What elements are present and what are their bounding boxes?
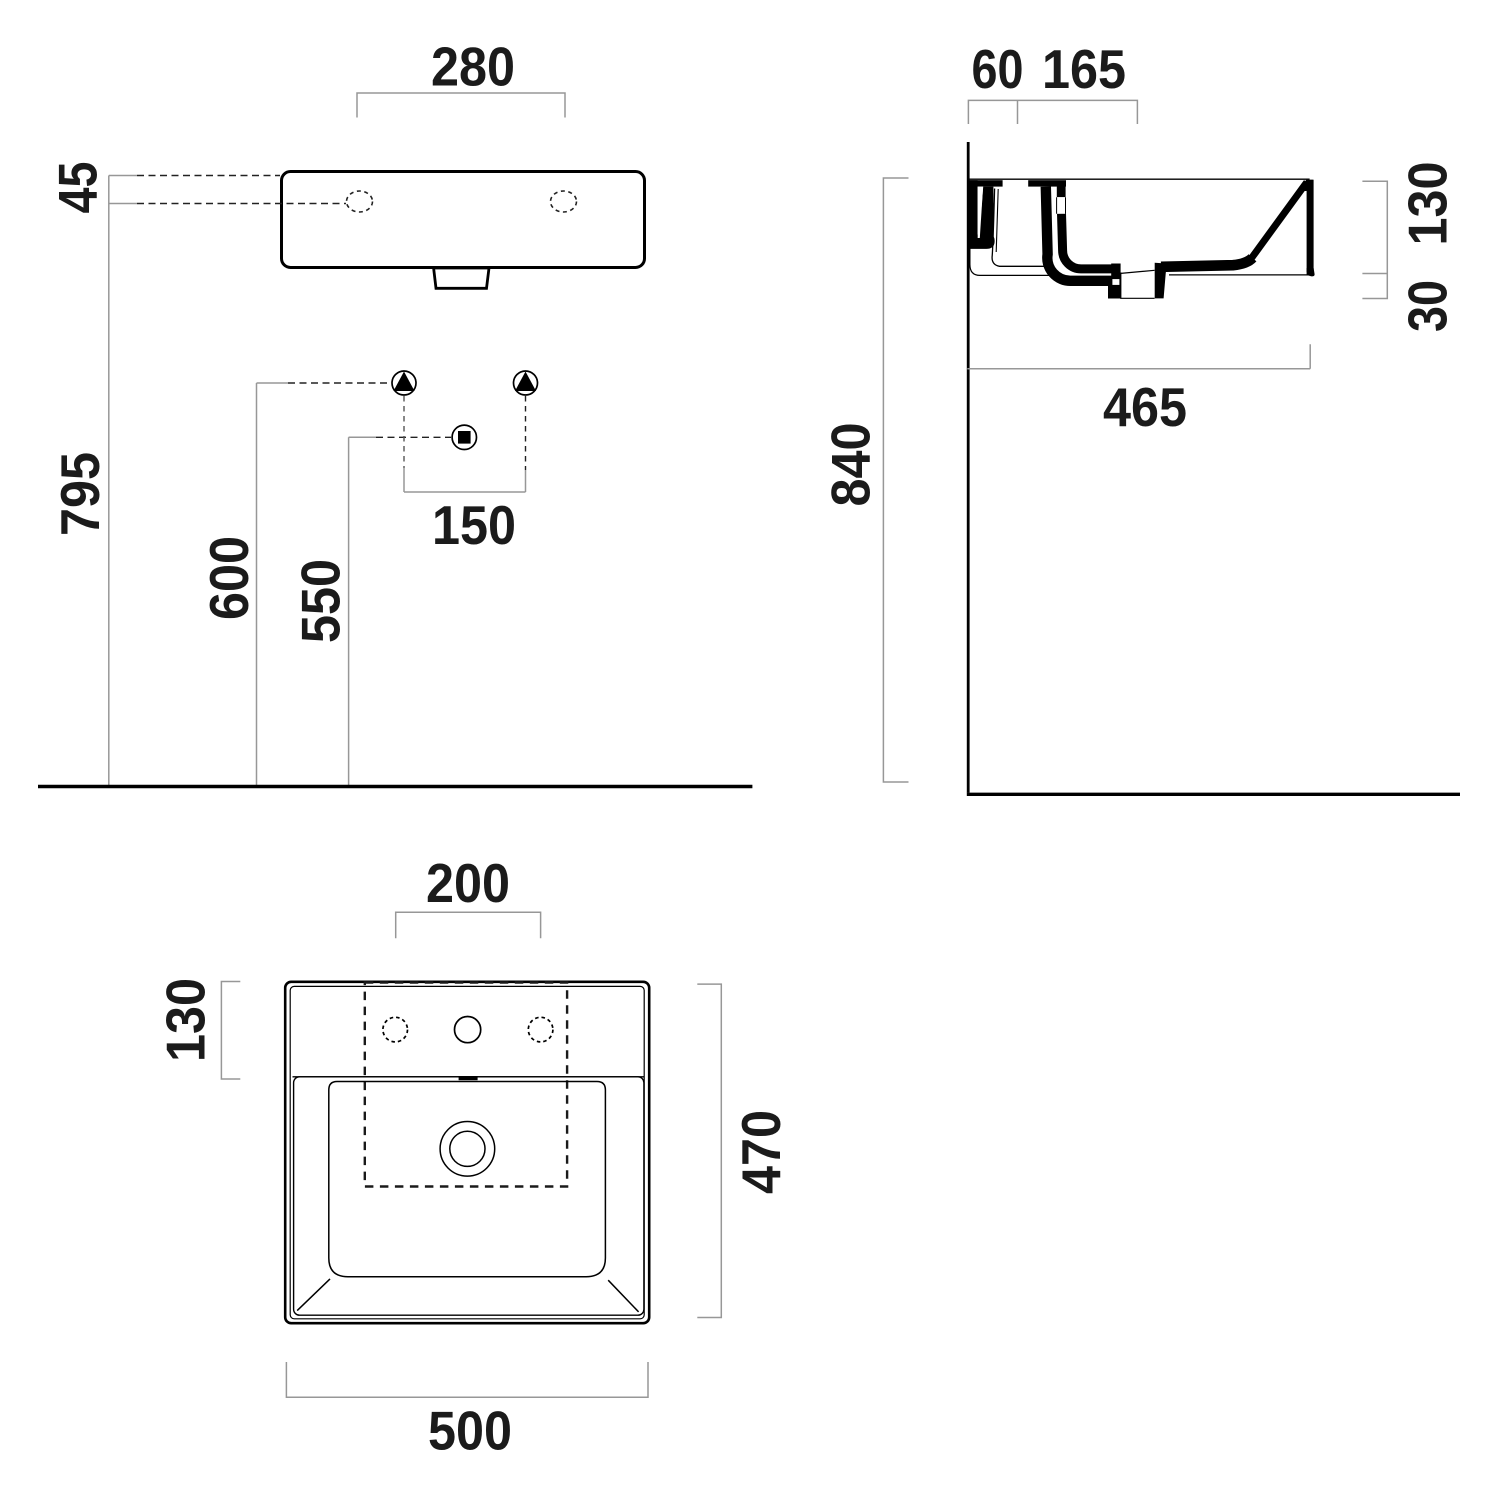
- svg-text:795: 795: [49, 452, 111, 536]
- svg-text:840: 840: [820, 423, 882, 507]
- svg-text:150: 150: [432, 494, 516, 556]
- svg-text:200: 200: [426, 852, 510, 914]
- svg-text:30: 30: [1397, 280, 1459, 332]
- svg-text:45: 45: [47, 162, 109, 214]
- svg-text:280: 280: [431, 36, 515, 98]
- svg-text:130: 130: [1397, 162, 1459, 246]
- svg-text:600: 600: [198, 536, 260, 620]
- svg-text:500: 500: [428, 1400, 512, 1462]
- svg-text:130: 130: [155, 978, 217, 1062]
- svg-text:470: 470: [730, 1110, 792, 1194]
- svg-text:465: 465: [1103, 376, 1187, 438]
- svg-text:165: 165: [1042, 38, 1126, 100]
- svg-text:60: 60: [972, 38, 1024, 100]
- svg-text:550: 550: [290, 559, 352, 643]
